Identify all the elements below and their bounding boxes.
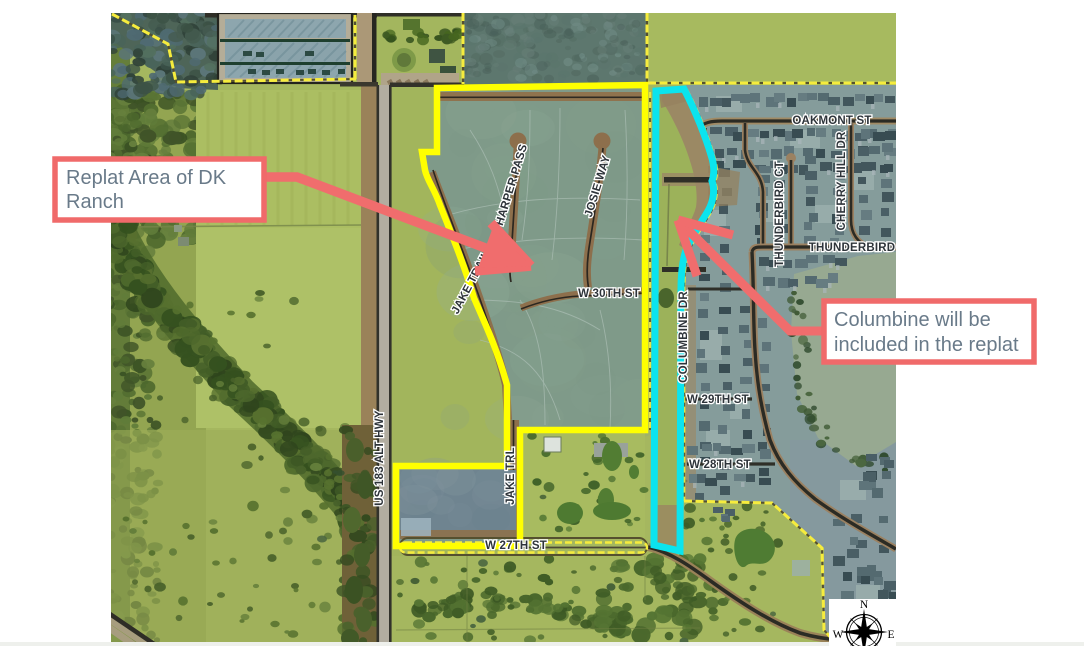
svg-text:THUNDERBIRD CT: THUNDERBIRD CT [774,161,786,267]
svg-text:COLUMBINE DR: COLUMBINE DR [678,291,690,383]
svg-text:E: E [887,629,894,641]
svg-text:CHERRY HILL DR: CHERRY HILL DR [836,131,848,231]
svg-text:Replat Area of DK: Replat Area of DK [66,167,227,189]
svg-text:US 183 ALT HWY: US 183 ALT HWY [374,410,386,506]
svg-text:W 27TH ST: W 27TH ST [485,540,547,552]
svg-text:W 30TH ST: W 30TH ST [578,288,640,300]
svg-text:THUNDERBIRD: THUNDERBIRD [809,242,896,254]
svg-text:W 29TH ST: W 29TH ST [687,394,749,406]
svg-text:JAKE TRL: JAKE TRL [505,447,517,505]
svg-text:W: W [833,629,844,641]
svg-text:Columbine will be: Columbine will be [834,309,991,331]
svg-text:N: N [860,599,869,611]
svg-text:W 28TH ST: W 28TH ST [689,459,751,471]
svg-text:OAKMONT ST: OAKMONT ST [792,115,871,127]
svg-text:included in the replat: included in the replat [834,334,1019,356]
svg-text:Ranch: Ranch [66,191,124,213]
